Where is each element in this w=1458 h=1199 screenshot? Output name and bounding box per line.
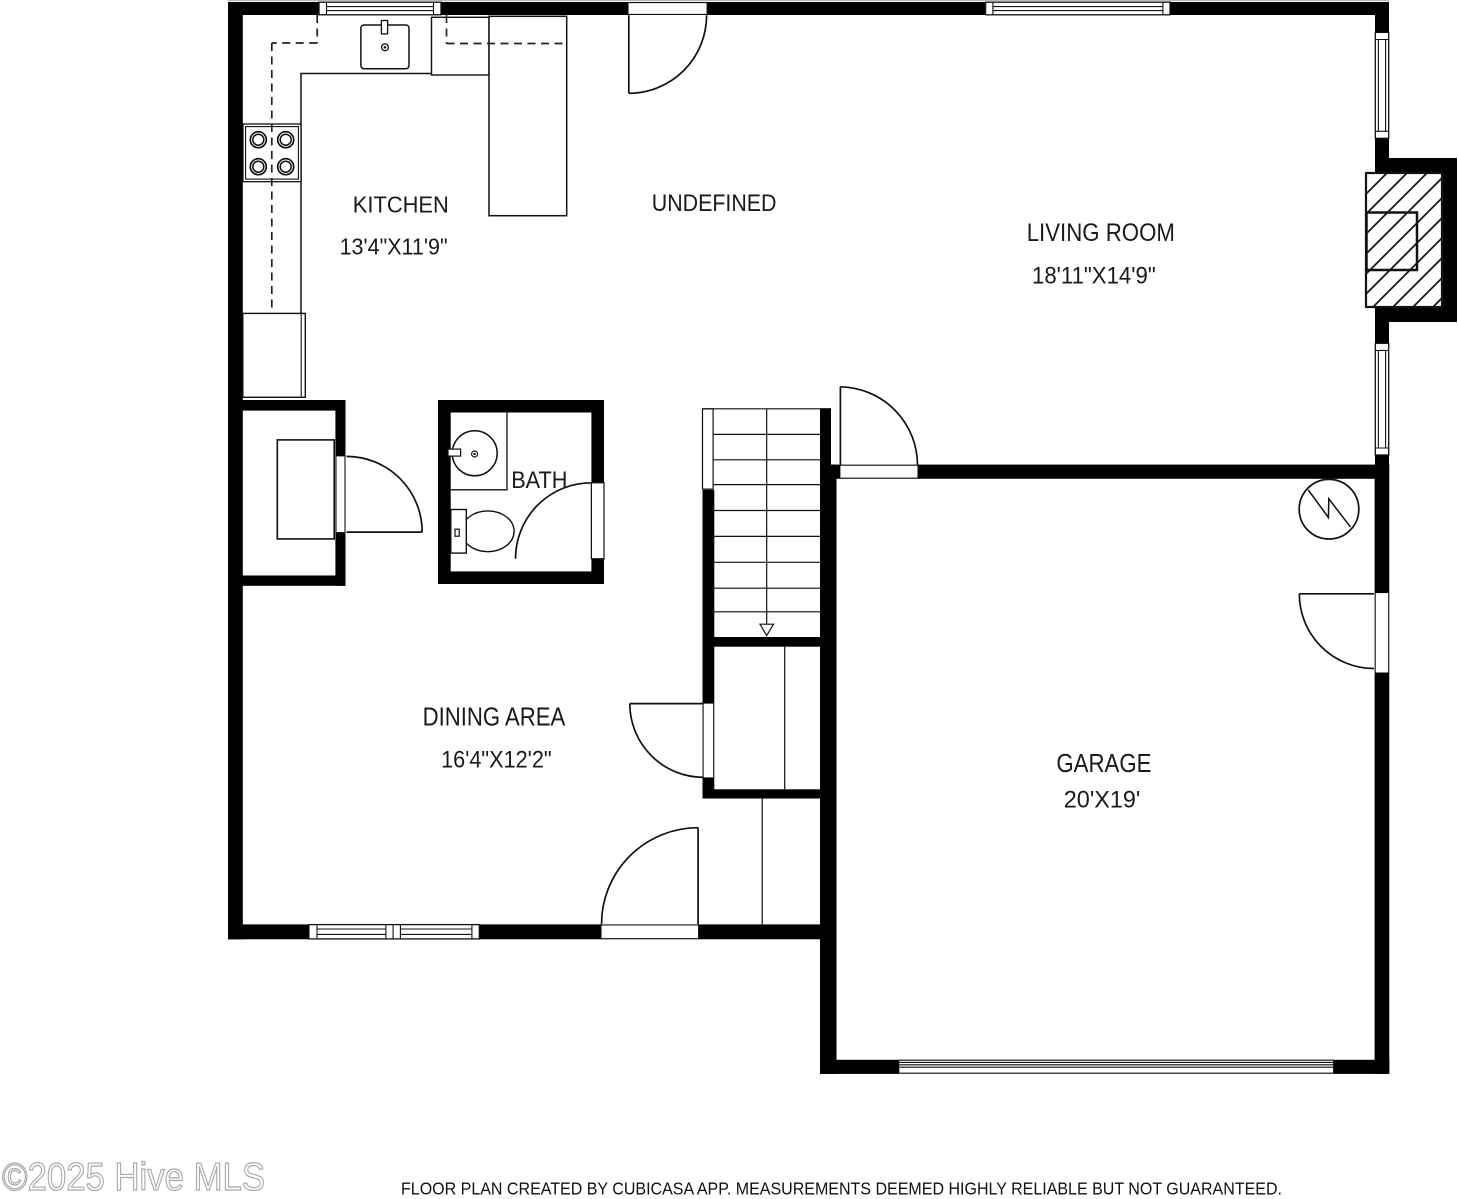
svg-text:FLOOR PLAN CREATED BY CUBICASA: FLOOR PLAN CREATED BY CUBICASA APP. MEAS… (401, 1179, 1282, 1199)
svg-text:20'X19': 20'X19' (1064, 786, 1141, 813)
svg-text:BATH: BATH (511, 467, 567, 494)
svg-text:UNDEFINED: UNDEFINED (652, 190, 777, 217)
svg-text:KITCHEN: KITCHEN (353, 191, 449, 217)
svg-text:16'4"X12'2": 16'4"X12'2" (441, 747, 551, 774)
svg-text:©2025 Hive MLS: ©2025 Hive MLS (2, 1156, 265, 1199)
svg-text:18'11"X14'9": 18'11"X14'9" (1032, 263, 1156, 290)
svg-text:GARAGE: GARAGE (1056, 748, 1151, 778)
svg-text:LIVING ROOM: LIVING ROOM (1027, 219, 1175, 247)
svg-text:13'4"X11'9": 13'4"X11'9" (340, 233, 448, 259)
svg-text:DINING AREA: DINING AREA (423, 702, 566, 732)
